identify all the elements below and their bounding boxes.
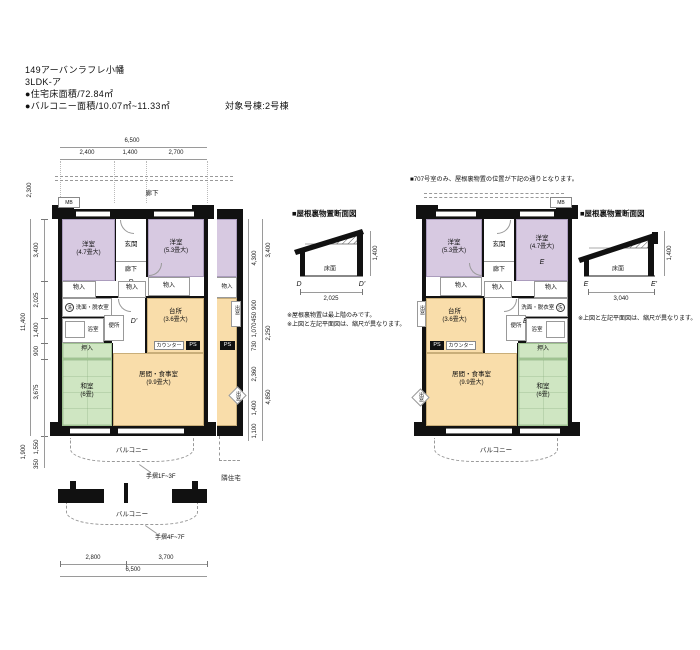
dim-seg: 1,400 bbox=[122, 150, 137, 156]
room-label: 和室(6畳) bbox=[62, 383, 112, 399]
dim-seg: 2,025 bbox=[34, 292, 40, 307]
window bbox=[520, 428, 560, 434]
balcony-label: バルコニー bbox=[480, 444, 512, 454]
window bbox=[436, 211, 476, 217]
dim-extension bbox=[207, 161, 208, 203]
room-size: (4.7畳大) bbox=[76, 250, 100, 256]
dim-subtotal: 1,900 bbox=[21, 444, 27, 459]
corridor-line bbox=[55, 176, 233, 177]
dim-tick bbox=[60, 561, 61, 567]
window bbox=[76, 211, 110, 217]
section-d-title: ■屋根裏物置断面図 bbox=[292, 208, 357, 219]
dim-seg: 4,300 bbox=[252, 250, 258, 265]
door-arc bbox=[120, 220, 134, 234]
pipe-space: PS bbox=[186, 341, 200, 350]
dim-tick bbox=[41, 359, 48, 360]
dim-seg: 350 bbox=[34, 459, 40, 469]
room-size: (6畳) bbox=[80, 392, 93, 398]
section-marker-d-prime: D' bbox=[356, 281, 368, 288]
dim-line bbox=[44, 436, 45, 468]
dim-width: 2,025 bbox=[323, 296, 338, 302]
dim-seg: 2,700 bbox=[168, 150, 183, 156]
room-name: 洋室 bbox=[82, 241, 95, 248]
section-marker-d: D bbox=[294, 281, 304, 288]
closet-label: 物入 bbox=[484, 285, 512, 292]
floorplan-sheet: 149アーバンラフレ小幡 3LDK-ア ●住宅床面積/72.84㎡ ●バルコニー… bbox=[0, 0, 700, 650]
handrail-label-low: 手摺1F~3F bbox=[146, 471, 176, 480]
room-name: 台所 bbox=[448, 308, 461, 315]
room-size: (5.3畳大) bbox=[442, 248, 466, 254]
closet-label: 物入 bbox=[534, 285, 568, 292]
door-arc bbox=[118, 299, 131, 312]
room-size: (4.7畳大) bbox=[530, 244, 554, 250]
wall-segment bbox=[58, 489, 104, 503]
dim-tick bbox=[41, 318, 48, 319]
wall-inner bbox=[483, 298, 485, 353]
room-label: 洋室(4.7畳大) bbox=[62, 241, 115, 257]
dim-tick bbox=[41, 219, 48, 220]
room-label: 台所(3.6畳大) bbox=[147, 308, 204, 324]
dim-seg: 2,800 bbox=[85, 555, 100, 561]
section-d-note-1: ※屋根裏物置は最上階のみです。 bbox=[287, 310, 375, 319]
window bbox=[154, 211, 194, 217]
laundry-icon: 洗 bbox=[65, 303, 74, 312]
wall-right bbox=[568, 209, 572, 436]
room-size: (9.9畳大) bbox=[459, 380, 483, 386]
dim-seg: 3,400 bbox=[266, 242, 272, 257]
dim-line bbox=[262, 219, 263, 441]
room-living-dining bbox=[113, 353, 204, 426]
unit-707-note: ■707号室のみ、屋根裏物置の位置が下記の通りとなります。 bbox=[410, 174, 578, 183]
room-label: 洋室(5.3畳大) bbox=[148, 239, 204, 255]
dim-total-bottom: 6,500 bbox=[125, 567, 140, 573]
section-marker-e-prime: E' bbox=[648, 281, 660, 288]
room-name: 洋室 bbox=[448, 239, 461, 246]
door-arc bbox=[504, 299, 517, 312]
room-label: 洋室(4.7畳大) bbox=[516, 235, 568, 251]
bay-window-label: 出窓 bbox=[419, 305, 424, 315]
dim-width: 3,040 bbox=[613, 296, 628, 302]
corridor-line bbox=[424, 197, 564, 198]
floor-plan-right: MB 洋室(5.3畳大) 洋室(4.7畳大) E 玄関 廊下 物入 物入 物入 … bbox=[422, 203, 572, 436]
bay-window-label: 出窓 bbox=[234, 305, 239, 315]
door-arc bbox=[497, 220, 511, 234]
room-name: 台所 bbox=[169, 308, 182, 315]
counter: カウンター bbox=[154, 341, 184, 350]
entrance-label: 玄関 bbox=[116, 241, 146, 249]
window bbox=[446, 428, 512, 434]
dim-seg: 450 bbox=[252, 312, 258, 322]
dim-line bbox=[30, 219, 31, 436]
room-western-partial bbox=[217, 219, 237, 277]
room-name: 和室 bbox=[81, 383, 94, 390]
meter-box: MB bbox=[550, 197, 572, 208]
washroom-label: 洗面・脱衣室 洗 bbox=[518, 303, 568, 312]
dim-height: 1,400 bbox=[373, 245, 379, 260]
window bbox=[520, 211, 554, 217]
closet-label: 物入 bbox=[118, 285, 146, 292]
room-name: 居間・食事室 bbox=[139, 371, 178, 378]
dim-seg: 3,400 bbox=[34, 242, 40, 257]
pipe-space: PS bbox=[220, 341, 235, 350]
room-label: 和室(6畳) bbox=[518, 383, 568, 399]
handrail-label-high: 手摺4F~7F bbox=[155, 532, 185, 541]
dim-line bbox=[60, 159, 207, 160]
dim-seg: 1,070 bbox=[252, 322, 258, 337]
hall-label: 廊下 bbox=[484, 267, 514, 274]
washroom-name: 洗面・脱衣室 bbox=[521, 305, 554, 311]
dim-line bbox=[60, 576, 207, 577]
dim-seg: 3,675 bbox=[34, 384, 40, 399]
section-marker-d-prime: D' bbox=[126, 318, 142, 325]
bathtub bbox=[546, 321, 565, 338]
dim-seg: 1,550 bbox=[34, 439, 40, 454]
dim-seg: 2,360 bbox=[252, 366, 258, 381]
dim-line bbox=[60, 147, 207, 148]
room-size: (9.9畳大) bbox=[146, 380, 170, 386]
balcony-area-line: ●バルコニー面積/10.07㎡~11.33㎡ bbox=[25, 99, 170, 112]
hall-label: 廊下 bbox=[116, 267, 146, 274]
section-e-title: ■屋根裏物置断面図 bbox=[580, 208, 645, 219]
section-e-note: ※上図と左記平面図は、縮尺が異なります。 bbox=[578, 313, 696, 322]
wall-right bbox=[204, 209, 208, 436]
laundry-icon: 洗 bbox=[556, 303, 565, 312]
floor-label: 床面 bbox=[324, 264, 336, 273]
room-label: 居間・食事室(9.9畳大) bbox=[426, 371, 517, 387]
pipe-space: PS bbox=[430, 341, 444, 350]
target-building: 対象号棟:2号棟 bbox=[225, 99, 289, 112]
room-name: 和室 bbox=[537, 383, 550, 390]
window bbox=[118, 428, 184, 434]
dim-line bbox=[44, 219, 45, 436]
dim-tick bbox=[41, 281, 48, 282]
room-label: 台所(3.6畳大) bbox=[426, 308, 483, 324]
section-d-note-2: ※上図と左記平面図は、縮尺が異なります。 bbox=[287, 319, 405, 328]
wall-bottom bbox=[217, 426, 243, 436]
wall-segment bbox=[172, 489, 207, 503]
dim-seg: 900 bbox=[252, 300, 258, 310]
dim-height: 1,400 bbox=[667, 245, 673, 260]
section-marker-e: E bbox=[581, 281, 591, 288]
dim-seg: 3,700 bbox=[158, 555, 173, 561]
bath-label: 浴室 bbox=[82, 327, 104, 334]
neighbor-label: 隣住宅 bbox=[221, 472, 241, 482]
washroom-label: 洗 洗面・脱衣室 bbox=[62, 303, 112, 312]
wall-segment bbox=[124, 483, 128, 503]
balcony-label: バルコニー bbox=[116, 444, 148, 454]
wall-segment bbox=[70, 481, 76, 489]
corridor-line bbox=[55, 180, 233, 181]
dim-line bbox=[300, 292, 362, 293]
dim-line bbox=[248, 219, 249, 441]
entry-step bbox=[116, 261, 146, 262]
oshiire-label: 押入 bbox=[62, 346, 112, 353]
dim-total-left: 11,400 bbox=[21, 313, 27, 331]
corridor-label: 廊下 bbox=[146, 187, 159, 197]
wall-segment bbox=[192, 481, 198, 489]
dim-tick bbox=[654, 289, 655, 295]
neighbor-unit-partial: 物入 出窓 PS 出窓 bbox=[217, 203, 243, 436]
dim-tick bbox=[588, 289, 589, 295]
entry-step bbox=[484, 261, 514, 262]
balcony-label: バルコニー bbox=[116, 508, 148, 518]
bay-window-label: 出窓 bbox=[235, 391, 240, 401]
dim-tick bbox=[362, 289, 363, 295]
closet-label: 物入 bbox=[62, 285, 96, 292]
dim-seg: 730 bbox=[252, 341, 258, 351]
dim-line bbox=[588, 292, 654, 293]
room-size: (6畳) bbox=[536, 392, 549, 398]
balcony-partial bbox=[219, 436, 240, 461]
dim-tick bbox=[207, 561, 208, 567]
floor-plan-left: MB 洋室(4.7畳大) 洋室(5.3畳大) 玄関 廊下 D 物入 物入 物入 … bbox=[58, 203, 208, 436]
oshiire-label: 押入 bbox=[518, 346, 568, 353]
room-label: 居間・食事室(9.9畳大) bbox=[113, 371, 204, 387]
dim-tick bbox=[41, 343, 48, 344]
dim-line bbox=[60, 564, 207, 565]
meter-box: MB bbox=[58, 197, 80, 208]
entrance-label: 玄関 bbox=[484, 241, 514, 249]
dim-seg: 1,400 bbox=[252, 400, 258, 415]
dim-seg: 4,850 bbox=[266, 389, 272, 404]
dim-seg: 900 bbox=[34, 346, 40, 356]
room-living-dining bbox=[426, 353, 517, 426]
bay-window-label: 出窓 bbox=[418, 392, 423, 402]
toilet-label: 便所 bbox=[104, 323, 124, 330]
corridor-line bbox=[424, 193, 564, 194]
closet-label: 物入 bbox=[440, 283, 482, 290]
room-name: 居間・食事室 bbox=[452, 371, 491, 378]
closet-label: 物入 bbox=[217, 284, 237, 291]
floor-label: 床面 bbox=[612, 264, 624, 273]
dim-tick bbox=[300, 289, 301, 295]
dim-seg: 2,400 bbox=[79, 150, 94, 156]
window bbox=[70, 428, 110, 434]
room-size: (3.6畳大) bbox=[442, 317, 466, 323]
counter: カウンター bbox=[446, 341, 476, 350]
dim-seg: 1,400 bbox=[34, 322, 40, 337]
dim-total-top: 6,500 bbox=[124, 138, 139, 144]
room-size: (3.6畳大) bbox=[163, 317, 187, 323]
dim-seg: 1,100 bbox=[252, 423, 258, 438]
room-label: 洋室(5.3畳大) bbox=[426, 239, 482, 255]
closet-label: 物入 bbox=[148, 283, 190, 290]
dim-seg: 2,250 bbox=[266, 325, 272, 340]
dim-line bbox=[664, 231, 665, 276]
room-name: 洋室 bbox=[170, 239, 183, 246]
dim-offset: 2,300 bbox=[27, 182, 33, 197]
room-size: (5.3畳大) bbox=[164, 248, 188, 254]
dim-line bbox=[370, 231, 371, 276]
washroom-name: 洗面・脱衣室 bbox=[76, 305, 109, 311]
bath-label: 浴室 bbox=[526, 327, 548, 334]
dim-extension bbox=[114, 161, 115, 203]
section-marker-e: E bbox=[516, 259, 568, 266]
room-name: 洋室 bbox=[536, 235, 549, 242]
